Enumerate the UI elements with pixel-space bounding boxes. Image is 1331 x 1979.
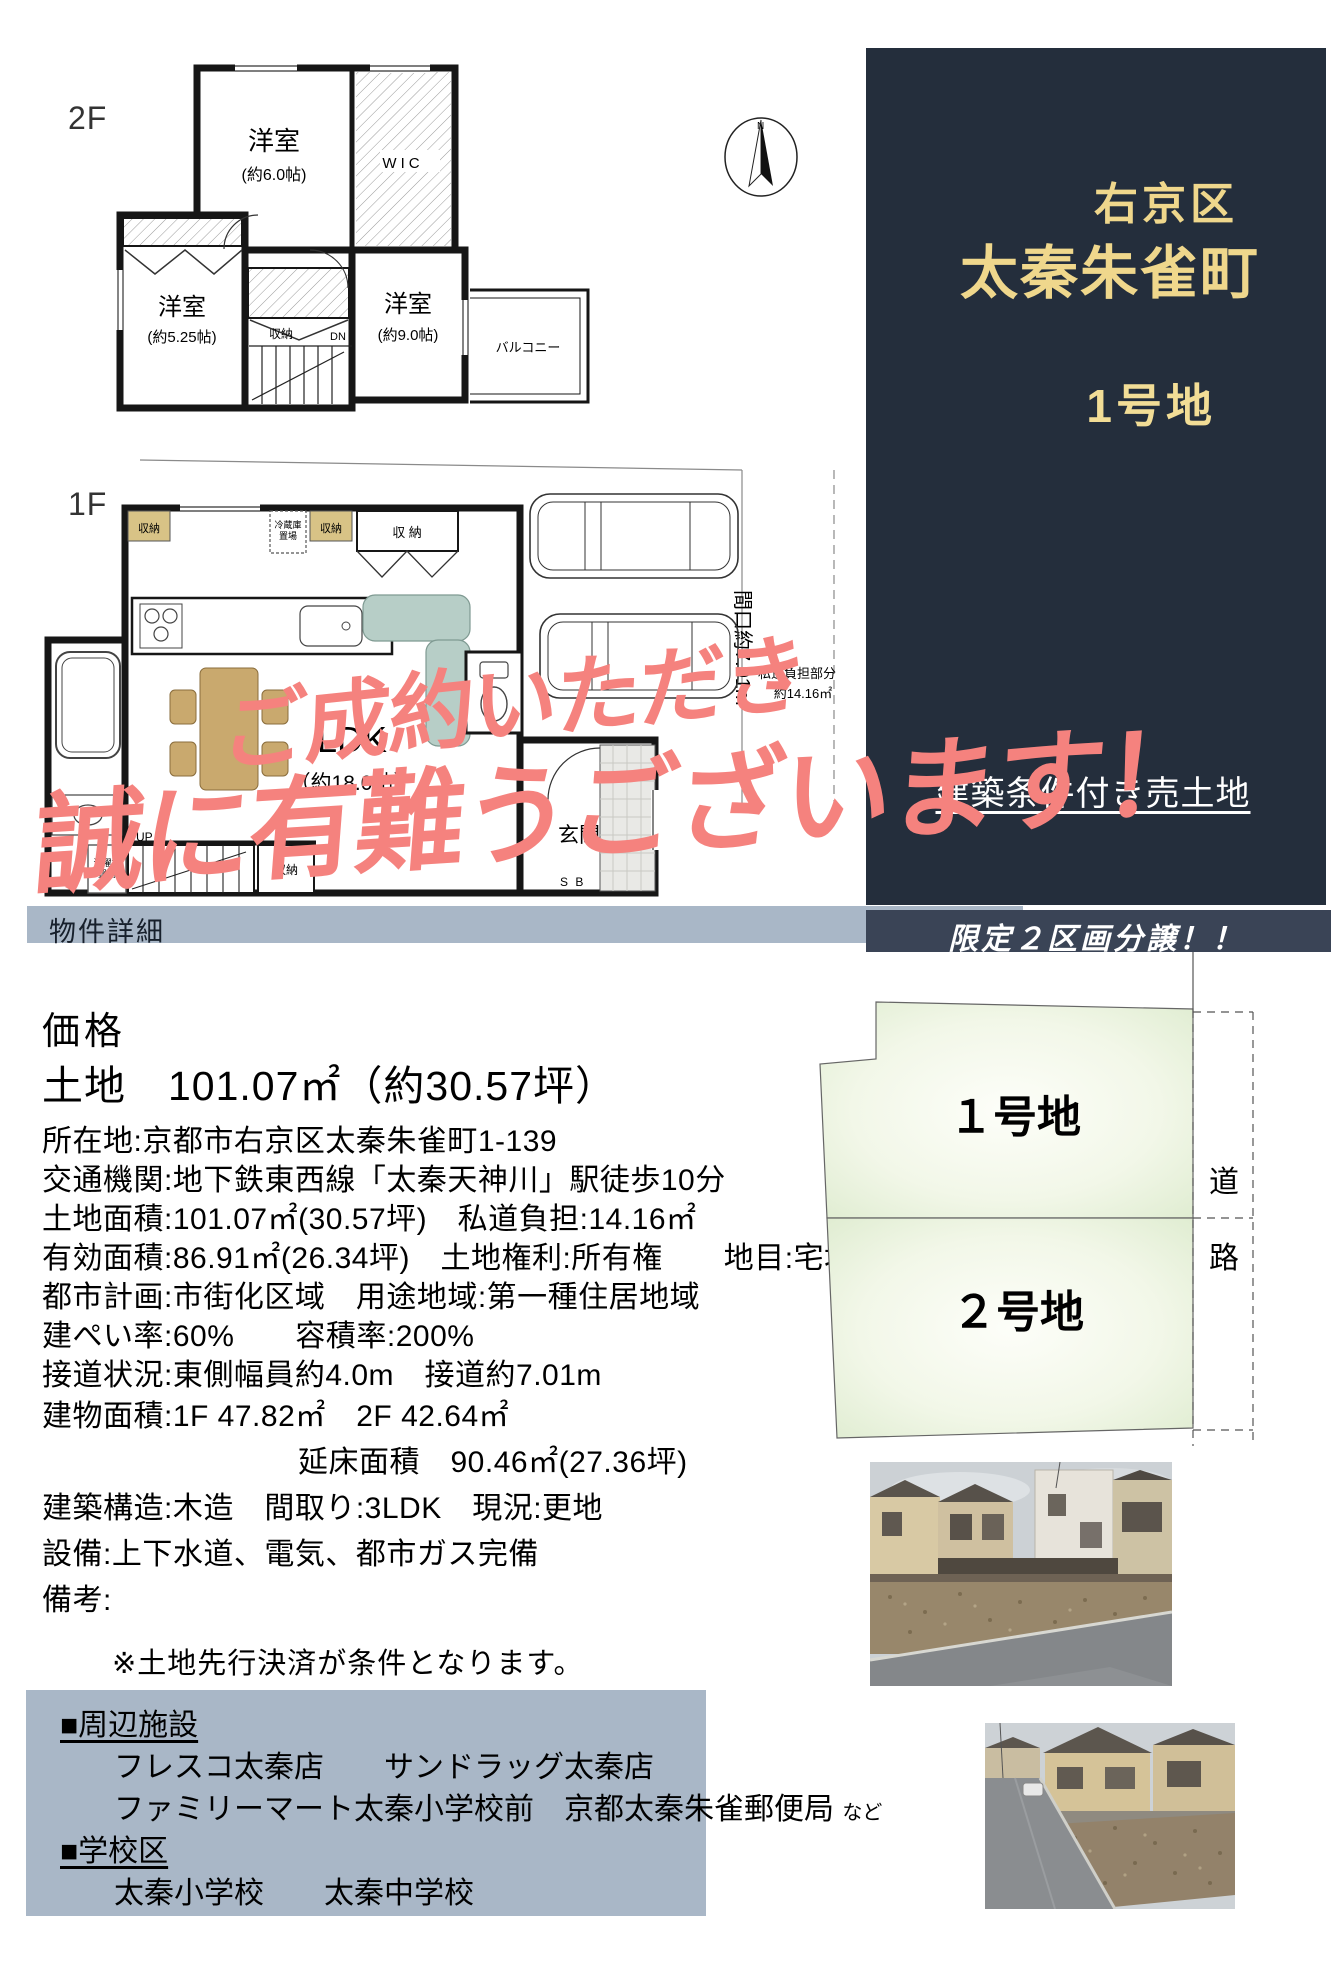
- detail-row-road: 接道状況:東側幅員約4.0m 接道約7.01m: [42, 1350, 602, 1394]
- 2f-wic-label: WIC: [382, 155, 423, 172]
- lot-2-label: ２号地: [952, 1288, 1084, 1337]
- detail-row-location: 所在地:京都市右京区太秦朱雀町1-139: [42, 1116, 557, 1160]
- detail-row-planning: 都市計画:市街化区域 用途地域:第一種住居地域: [42, 1272, 700, 1316]
- 1f-fridge-label2: 置場: [279, 530, 297, 541]
- 2f-room-b-size: (約5.25帖): [147, 329, 216, 346]
- road-dashed-lines: [1193, 952, 1253, 1446]
- lot-plan: １号地 ２号地 道 路: [805, 950, 1331, 1455]
- 1f-fridge-label1: 冷蔵庫: [274, 519, 301, 530]
- 2f-room-c-size: (約9.0帖): [378, 327, 439, 344]
- 1f-closet-top-right-label: 収 納: [392, 525, 422, 540]
- detail-row-coverage: 建ぺい率:60% 容積率:200%: [42, 1311, 474, 1355]
- detail-row-remarks: 備考:: [42, 1575, 112, 1619]
- floorplan-2f: 洋室 (約6.0帖) WIC 洋室 (約5.25帖) 洋室 (約9.0帖) 収納…: [105, 52, 605, 437]
- facilities-line-1: フレスコ太秦店 サンドラッグ太秦店: [114, 1742, 654, 1786]
- detail-row-building: 建物面積:1F 47.82㎡ 2F 42.64㎡: [42, 1391, 509, 1435]
- facilities-line-2-suffix: など: [842, 1802, 882, 1824]
- sidebar-lot-name: 1号地: [1086, 370, 1216, 436]
- detail-row-utilities: 設備:上下水道、電気、都市ガス完備: [42, 1529, 539, 1573]
- photo-2: [985, 1723, 1235, 1914]
- 2f-closet-hatch-center: [248, 268, 349, 318]
- 2f-dn-label: DN: [330, 331, 346, 343]
- 1f-closet-top-left-label: 収納: [138, 522, 160, 535]
- limited-banner-text: 限定２区画分譲！！: [948, 914, 1245, 958]
- 2f-room-b-label: 洋室: [158, 294, 206, 321]
- detail-row-transport: 交通機関:地下鉄東西線「太秦天神川」駅徒歩10分: [42, 1155, 726, 1199]
- 2f-room-c-label: 洋室: [384, 291, 432, 318]
- 2f-room-c-walls: [352, 250, 465, 400]
- school-line: 太秦小学校 太秦中学校: [114, 1868, 474, 1912]
- limited-banner: 限定２区画分譲！！: [866, 910, 1331, 952]
- precondition-note: ※土地先行決済が条件となります。: [112, 1640, 584, 1682]
- land-area-line: 土地 101.07㎡（約30.57坪）: [42, 1052, 617, 1112]
- road-label-1: 道: [1209, 1166, 1239, 1199]
- 1f-car-1: [530, 494, 738, 578]
- photo-1: [870, 1462, 1172, 1691]
- flyer-page: 2F: [0, 0, 1331, 1979]
- detail-row-total-floor: 延床面積 90.46㎡(27.36坪): [298, 1437, 688, 1481]
- facilities-line-2: ファミリーマート太秦小学校前 京都太秦朱雀郵便局 など: [114, 1784, 882, 1828]
- road-label-2: 路: [1209, 1242, 1239, 1275]
- detail-row-structure: 建築構造:木造 間取り:3LDK 現況:更地: [42, 1483, 603, 1527]
- 1f-kitchen: [132, 598, 392, 654]
- floor-2f-label: 2F: [68, 100, 107, 137]
- compass: N: [722, 112, 800, 203]
- detail-row-land-area: 土地面積:101.07㎡(30.57坪) 私道負担:14.16㎡: [42, 1194, 697, 1238]
- price-label: 価格: [42, 1000, 126, 1055]
- facilities-box: ■周辺施設 フレスコ太秦店 サンドラッグ太秦店 ファミリーマート太秦小学校前 京…: [26, 1690, 706, 1916]
- 1f-closet-top-mid-label: 収納: [320, 522, 342, 535]
- section-title: 物件詳細: [49, 910, 165, 949]
- 2f-closet-label: 収納: [269, 327, 293, 341]
- 2f-room-a-size: (約6.0帖): [242, 166, 307, 184]
- 2f-balcony-label: バルコニー: [496, 340, 561, 355]
- facilities-line-2-text: ファミリーマート太秦小学校前 京都太秦朱雀郵便局: [114, 1793, 834, 1826]
- sidebar-district: 右京区: [1094, 168, 1238, 232]
- facilities-title: ■周辺施設: [60, 1700, 198, 1744]
- sidebar-town: 太秦朱雀町: [960, 226, 1260, 310]
- school-title: ■学校区: [60, 1826, 168, 1870]
- lot-1-label: １号地: [949, 1093, 1081, 1142]
- detail-row-effective: 有効面積:86.91㎡(26.34坪) 土地権利:所有権 地目:宅地: [42, 1233, 855, 1277]
- 2f-room-a-label: 洋室: [248, 126, 300, 156]
- compass-n-label: N: [757, 121, 764, 132]
